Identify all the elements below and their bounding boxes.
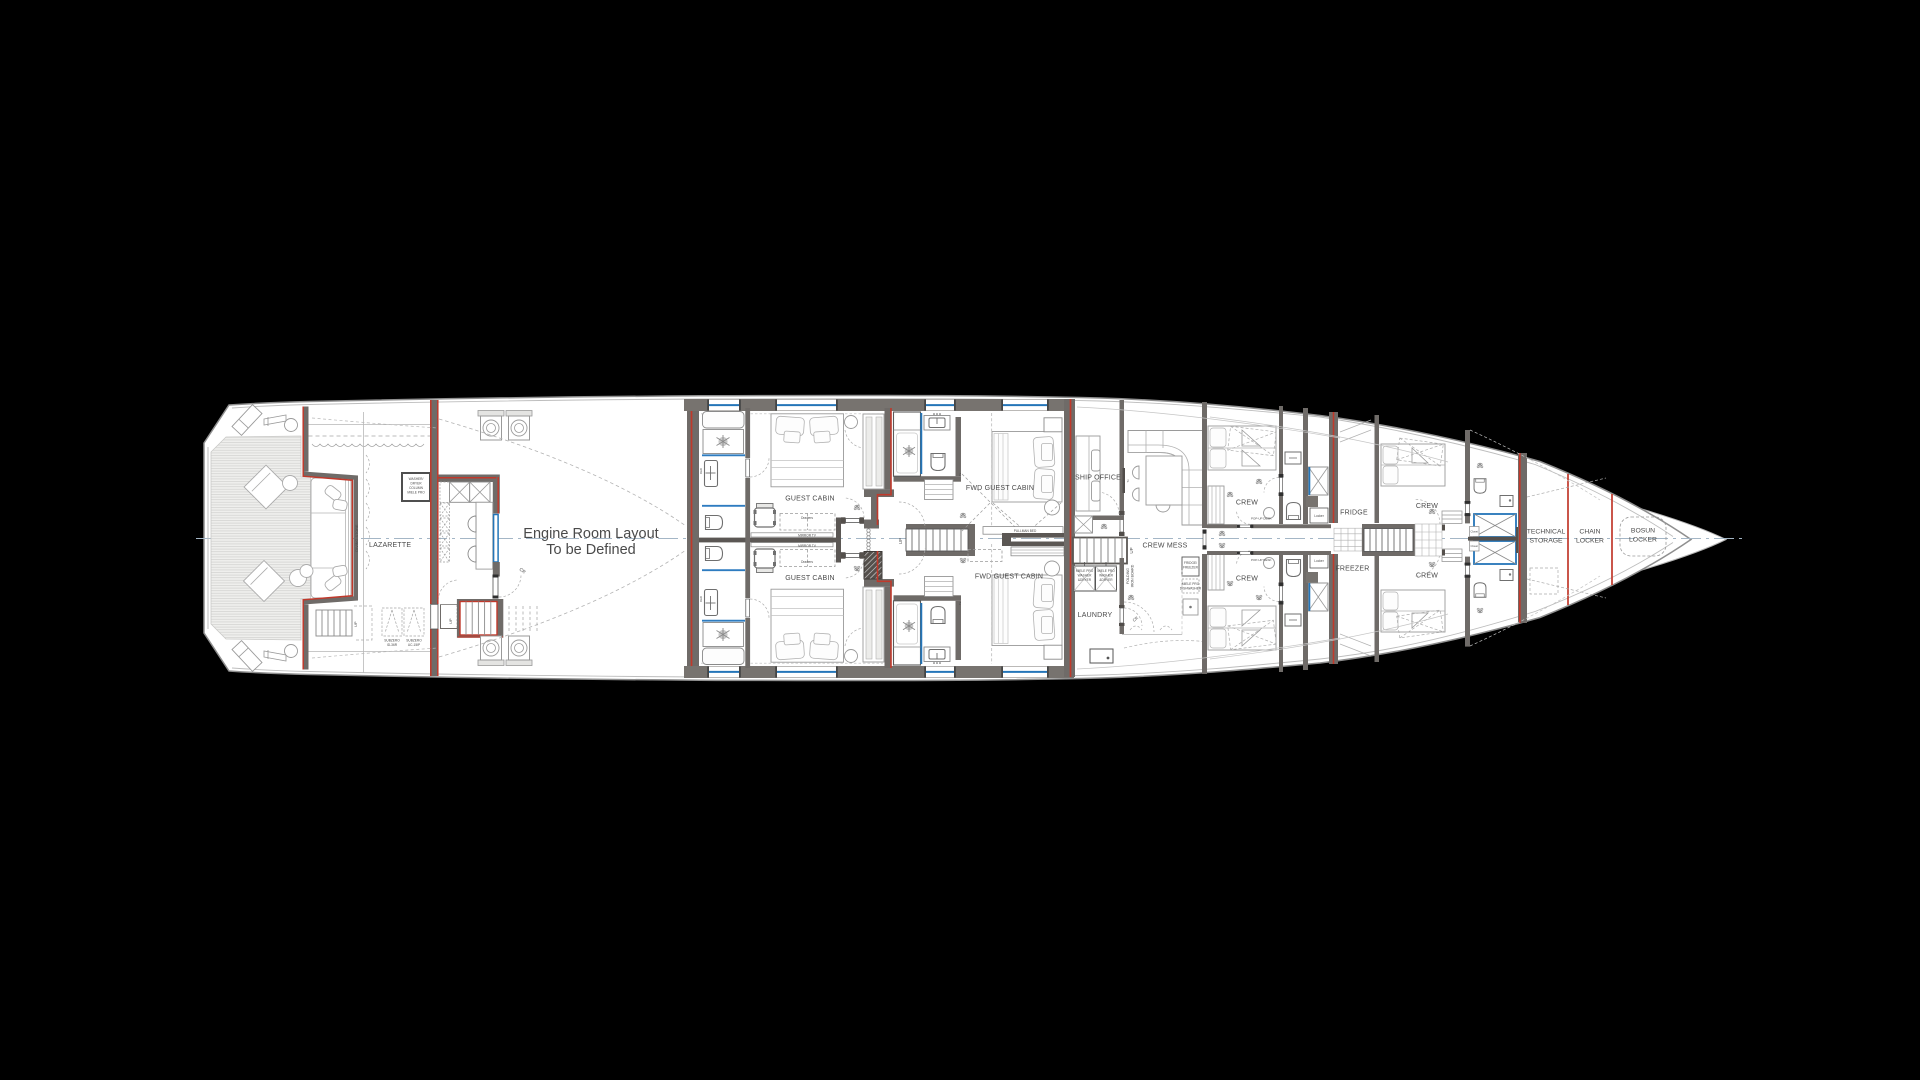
svg-text:ID-36R: ID-36R xyxy=(387,643,398,647)
svg-text:WASHER: WASHER xyxy=(1078,574,1093,578)
svg-text:MIELE PRO: MIELE PRO xyxy=(1076,569,1094,573)
svg-text:GUEST CABIN: GUEST CABIN xyxy=(785,496,835,503)
svg-text:Engine Room Layout: Engine Room Layout xyxy=(523,526,658,542)
svg-text:UP: UP xyxy=(353,621,358,627)
svg-text:IRON BOARD: IRON BOARD xyxy=(1131,564,1135,587)
svg-text:SUBZERO: SUBZERO xyxy=(406,639,422,643)
svg-text:FWD GUEST CABIN: FWD GUEST CABIN xyxy=(975,574,1043,581)
svg-text:POP-UP DESK: POP-UP DESK xyxy=(1251,558,1271,562)
svg-text:R&R: R&R xyxy=(699,596,703,602)
svg-text:&DRYER: &DRYER xyxy=(1078,578,1092,582)
svg-text:MIELE PRO: MIELE PRO xyxy=(1182,582,1200,586)
svg-text:CREW: CREW xyxy=(1416,503,1438,510)
svg-text:CREW: CREW xyxy=(1236,576,1258,583)
svg-text:FRIDGE: FRIDGE xyxy=(1340,510,1368,517)
svg-text:LOCKER: LOCKER xyxy=(1576,538,1604,545)
svg-text:WASHER/: WASHER/ xyxy=(409,477,424,481)
svg-text:UP: UP xyxy=(898,538,903,544)
svg-text:TECHNICAL: TECHNICAL xyxy=(1527,529,1566,536)
svg-text:LOCKER: LOCKER xyxy=(1629,537,1657,544)
svg-text:Locker: Locker xyxy=(1314,514,1325,518)
svg-text:MIELE PRO: MIELE PRO xyxy=(407,491,425,495)
svg-text:DRYER: DRYER xyxy=(410,482,422,486)
svg-text:LAUNDRY: LAUNDRY xyxy=(1078,612,1113,619)
svg-text:COLUMN: COLUMN xyxy=(409,486,424,490)
svg-text:CREW MESS: CREW MESS xyxy=(1143,543,1188,550)
svg-text:SHIP OFFICE: SHIP OFFICE xyxy=(1075,475,1121,482)
svg-text:Tv: Tv xyxy=(1126,479,1130,483)
svg-text:MIELE PRO: MIELE PRO xyxy=(1097,569,1115,573)
svg-text:FREEZER: FREEZER xyxy=(1335,566,1369,573)
svg-text:MIRROR TV: MIRROR TV xyxy=(798,544,817,548)
svg-text:Closet: Closet xyxy=(1471,530,1479,534)
svg-text:CREW: CREW xyxy=(1416,573,1438,580)
svg-text:UP: UP xyxy=(1129,547,1134,553)
svg-text:FOLDING: FOLDING xyxy=(1126,568,1130,584)
svg-text:WASHER: WASHER xyxy=(1099,574,1114,578)
svg-text:DISHWASHER: DISHWASHER xyxy=(1180,587,1202,591)
svg-text:MIRROR TV: MIRROR TV xyxy=(798,533,817,537)
svg-text:SUBZERO: SUBZERO xyxy=(384,639,400,643)
svg-text:POP-UP DESK: POP-UP DESK xyxy=(1251,517,1271,521)
svg-text:Locker: Locker xyxy=(1314,559,1325,563)
svg-text:To be Defined: To be Defined xyxy=(546,542,635,558)
svg-text:FWD GUEST CABIN: FWD GUEST CABIN xyxy=(966,485,1034,492)
svg-text:Drawers: Drawers xyxy=(801,516,813,520)
svg-text:UP: UP xyxy=(448,618,453,624)
svg-text:LAZARETTE: LAZARETTE xyxy=(369,542,411,549)
svg-text:&DRYER: &DRYER xyxy=(1099,578,1113,582)
svg-text:GUEST CABIN: GUEST CABIN xyxy=(785,575,835,582)
svg-text:BOSUN: BOSUN xyxy=(1631,528,1655,535)
svg-text:R&R: R&R xyxy=(699,468,703,474)
svg-text:PULLMAN BED: PULLMAN BED xyxy=(1014,529,1037,533)
svg-text:UC-15IP: UC-15IP xyxy=(408,643,420,647)
svg-text:STORAGE: STORAGE xyxy=(1529,538,1563,545)
svg-text:FREEZER: FREEZER xyxy=(1183,566,1199,570)
svg-text:DIVING STORE: DIVING STORE xyxy=(355,524,359,552)
svg-text:CREW: CREW xyxy=(1236,500,1258,507)
svg-text:FRIDGE/: FRIDGE/ xyxy=(1184,561,1197,565)
svg-text:Closet: Closet xyxy=(1471,544,1479,548)
svg-text:Drawers: Drawers xyxy=(801,560,813,564)
svg-text:CHAIN: CHAIN xyxy=(1579,529,1600,536)
